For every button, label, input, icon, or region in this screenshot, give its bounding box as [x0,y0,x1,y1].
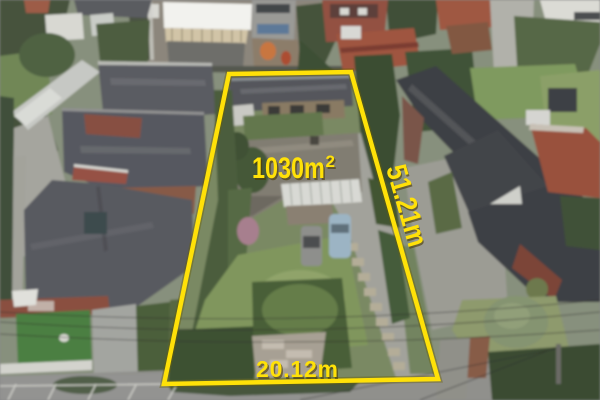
svg-text:1030m: 1030m [252,151,325,184]
svg-text:2: 2 [326,152,335,171]
svg-text:20.12m: 20.12m [256,356,339,382]
